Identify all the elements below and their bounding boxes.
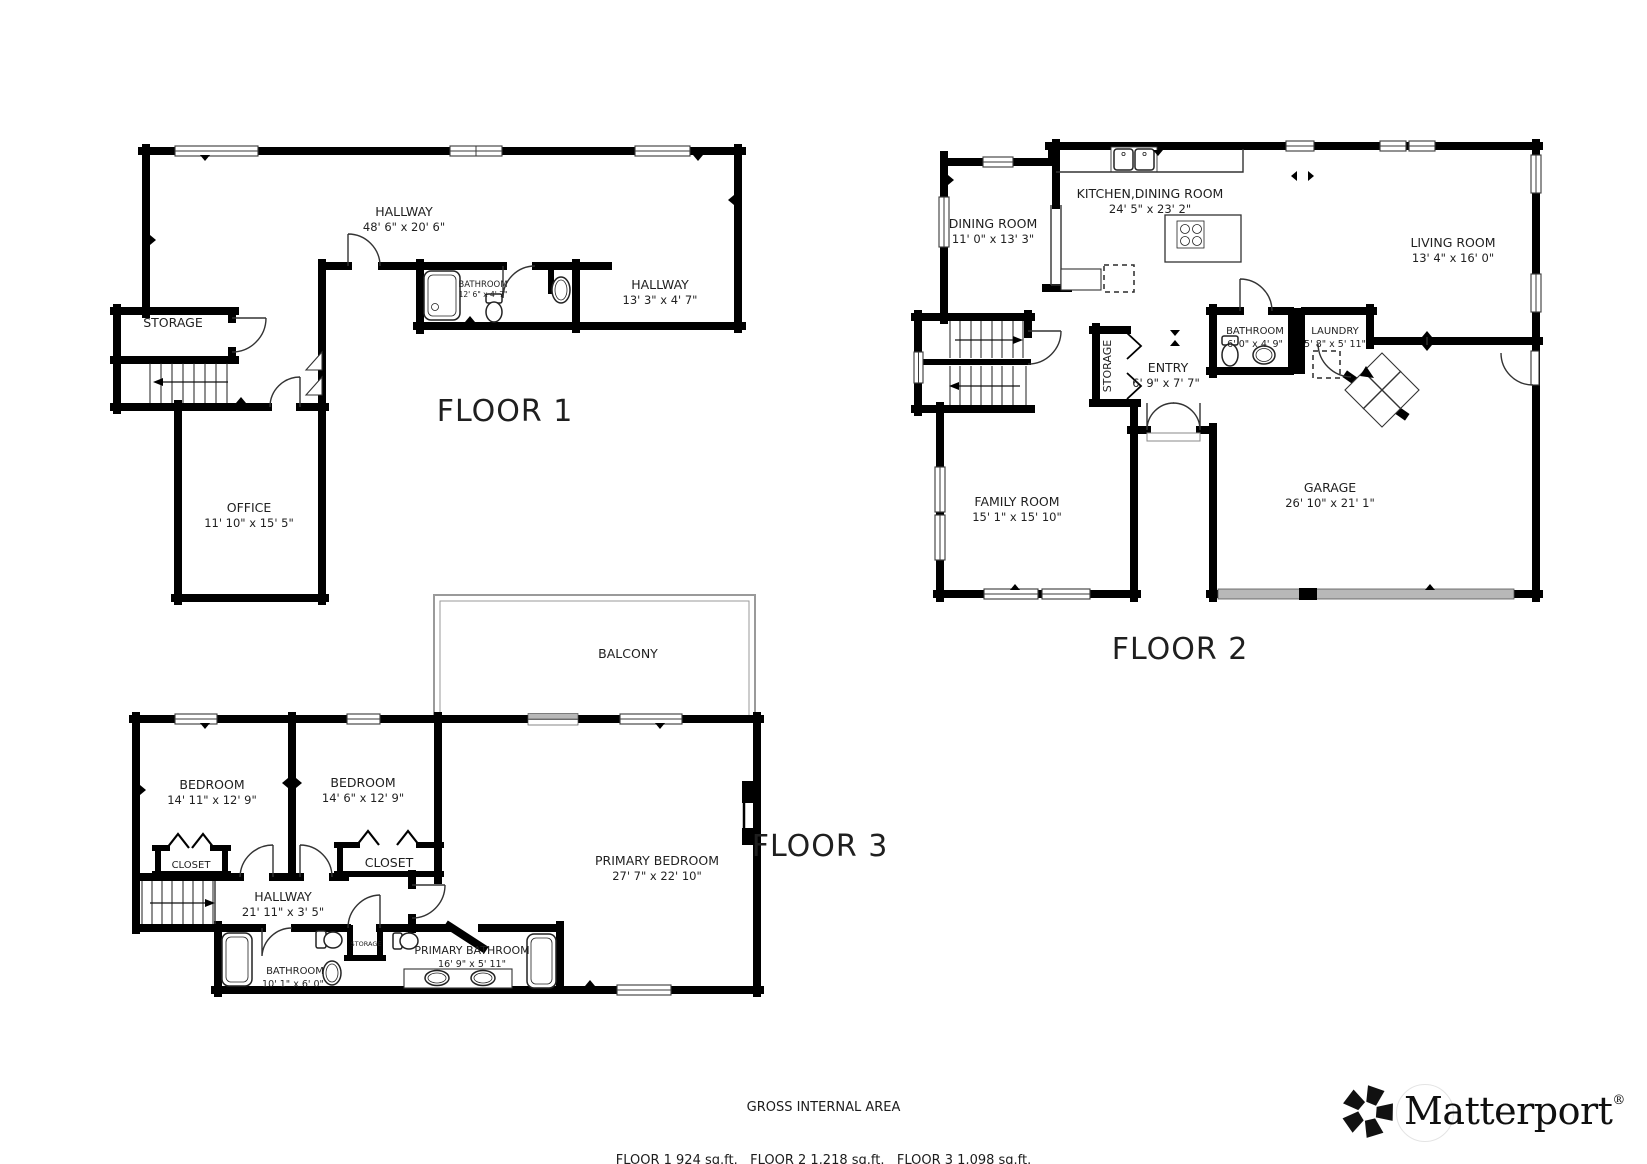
room-label-entry: ENTRY — [1148, 360, 1189, 375]
room-label-closet1: CLOSET — [172, 860, 212, 871]
matterport-logo: Matterport® — [1338, 1080, 1625, 1142]
room-dims-kitchen-dining: 24' 5" x 23' 2" — [1109, 202, 1191, 216]
room-label-hallway-right: HALLWAY — [631, 277, 689, 292]
room-label-family: FAMILY ROOM — [974, 494, 1059, 509]
room-dims-bedroom1: 14' 11" x 12' 9" — [167, 793, 257, 807]
registered-mark: ® — [1612, 1093, 1625, 1108]
room-dims-dining: 11' 0" x 13' 3" — [952, 232, 1034, 246]
floor-2-title: FLOOR 2 — [1112, 632, 1249, 667]
room-dims-bathroom-f3: 10' 1" x 6' 0" — [262, 979, 324, 990]
room-label-primary-bedroom: PRIMARY BEDROOM — [595, 853, 719, 868]
room-dims-primary-bathroom: 16' 9" x 5' 11" — [438, 959, 506, 970]
room-label-bathroom-f1: BATHROOM — [458, 280, 507, 290]
room-dims-garage: 26' 10" x 21' 1" — [1285, 496, 1375, 510]
floor-3-title: FLOOR 3 — [752, 829, 889, 864]
room-label-garage: GARAGE — [1304, 480, 1356, 495]
room-label-storage-f1: STORAGE — [143, 315, 203, 330]
room-label-office: OFFICE — [227, 500, 272, 515]
room-label-laundry: LAUNDRY — [1311, 326, 1359, 337]
matterport-wordmark: Matterport® — [1404, 1089, 1625, 1133]
room-label-closet2: CLOSET — [365, 855, 414, 870]
room-dims-bathroom-f2: 6' 0" x 4' 9" — [1227, 339, 1283, 350]
room-label-balcony: BALCONY — [598, 646, 658, 661]
matterport-pinwheel-icon — [1338, 1083, 1398, 1140]
floor-1-title: FLOOR 1 — [437, 394, 574, 429]
floor-3-plan: BALCONY BEDROOM 14' 11" x 12' 9" BEDROOM… — [115, 550, 895, 1015]
room-label-bedroom1: BEDROOM — [179, 777, 244, 792]
room-label-bathroom-f2: BATHROOM — [1226, 326, 1284, 337]
brand-text: Matterport — [1404, 1089, 1612, 1133]
room-label-storage-f2: STORAGE — [1101, 340, 1114, 392]
floor-2-walls — [915, 143, 1539, 598]
area-summary-floors: FLOOR 1 924 sq.ft. FLOOR 2 1,218 sq.ft. … — [0, 1152, 1647, 1164]
floor-1-plan: HALLWAY 48' 6" x 20' 6" BATHROOM 12' 6" … — [95, 125, 770, 620]
room-dims-laundry: 5' 8" x 5' 11" — [1304, 339, 1366, 350]
room-label-kitchen-dining: KITCHEN,DINING ROOM — [1077, 186, 1224, 201]
room-dims-hallway-right: 13' 3" x 4' 7" — [623, 293, 698, 307]
room-label-hallway-f3: HALLWAY — [254, 889, 312, 904]
floor-1-stairs — [150, 364, 228, 404]
room-dims-living: 13' 4" x 16' 0" — [1412, 251, 1494, 265]
room-dims-primary-bedroom: 27' 7" x 22' 10" — [612, 869, 702, 883]
floor-3-stairs — [142, 881, 215, 924]
room-label-bedroom2: BEDROOM — [330, 775, 395, 790]
room-label-dining: DINING ROOM — [949, 216, 1038, 231]
room-dims-bedroom2: 14' 6" x 12' 9" — [322, 791, 404, 805]
room-label-primary-bathroom: PRIMARY BATHROOM — [414, 944, 529, 957]
room-dims-office: 11' 10" x 15' 5" — [204, 516, 294, 530]
room-dims-bathroom-f1: 12' 6" x 4' 7" — [459, 290, 508, 299]
floor-2-plan: DINING ROOM 11' 0" x 13' 3" KITCHEN,DINI… — [870, 120, 1570, 675]
floor-2-plumbing-chase — [1288, 308, 1305, 374]
room-label-living: LIVING ROOM — [1410, 235, 1495, 250]
floor-2-garage-door — [1218, 588, 1514, 600]
room-label-bathroom-f3: BATHROOM — [266, 966, 324, 977]
room-dims-family: 15' 1" x 15' 10" — [972, 510, 1062, 524]
room-dims-hallway-f3: 21' 11" x 3' 5" — [242, 905, 324, 919]
room-label-hallway-main: HALLWAY — [375, 204, 433, 219]
room-dims-hallway-main: 48' 6" x 20' 6" — [363, 220, 445, 234]
floorplan-page: HALLWAY 48' 6" x 20' 6" BATHROOM 12' 6" … — [0, 0, 1647, 1164]
room-dims-entry: 6' 9" x 7' 7" — [1132, 376, 1200, 390]
room-label-storage-f3: STORAGE — [351, 940, 382, 948]
balcony-outline — [434, 595, 755, 716]
